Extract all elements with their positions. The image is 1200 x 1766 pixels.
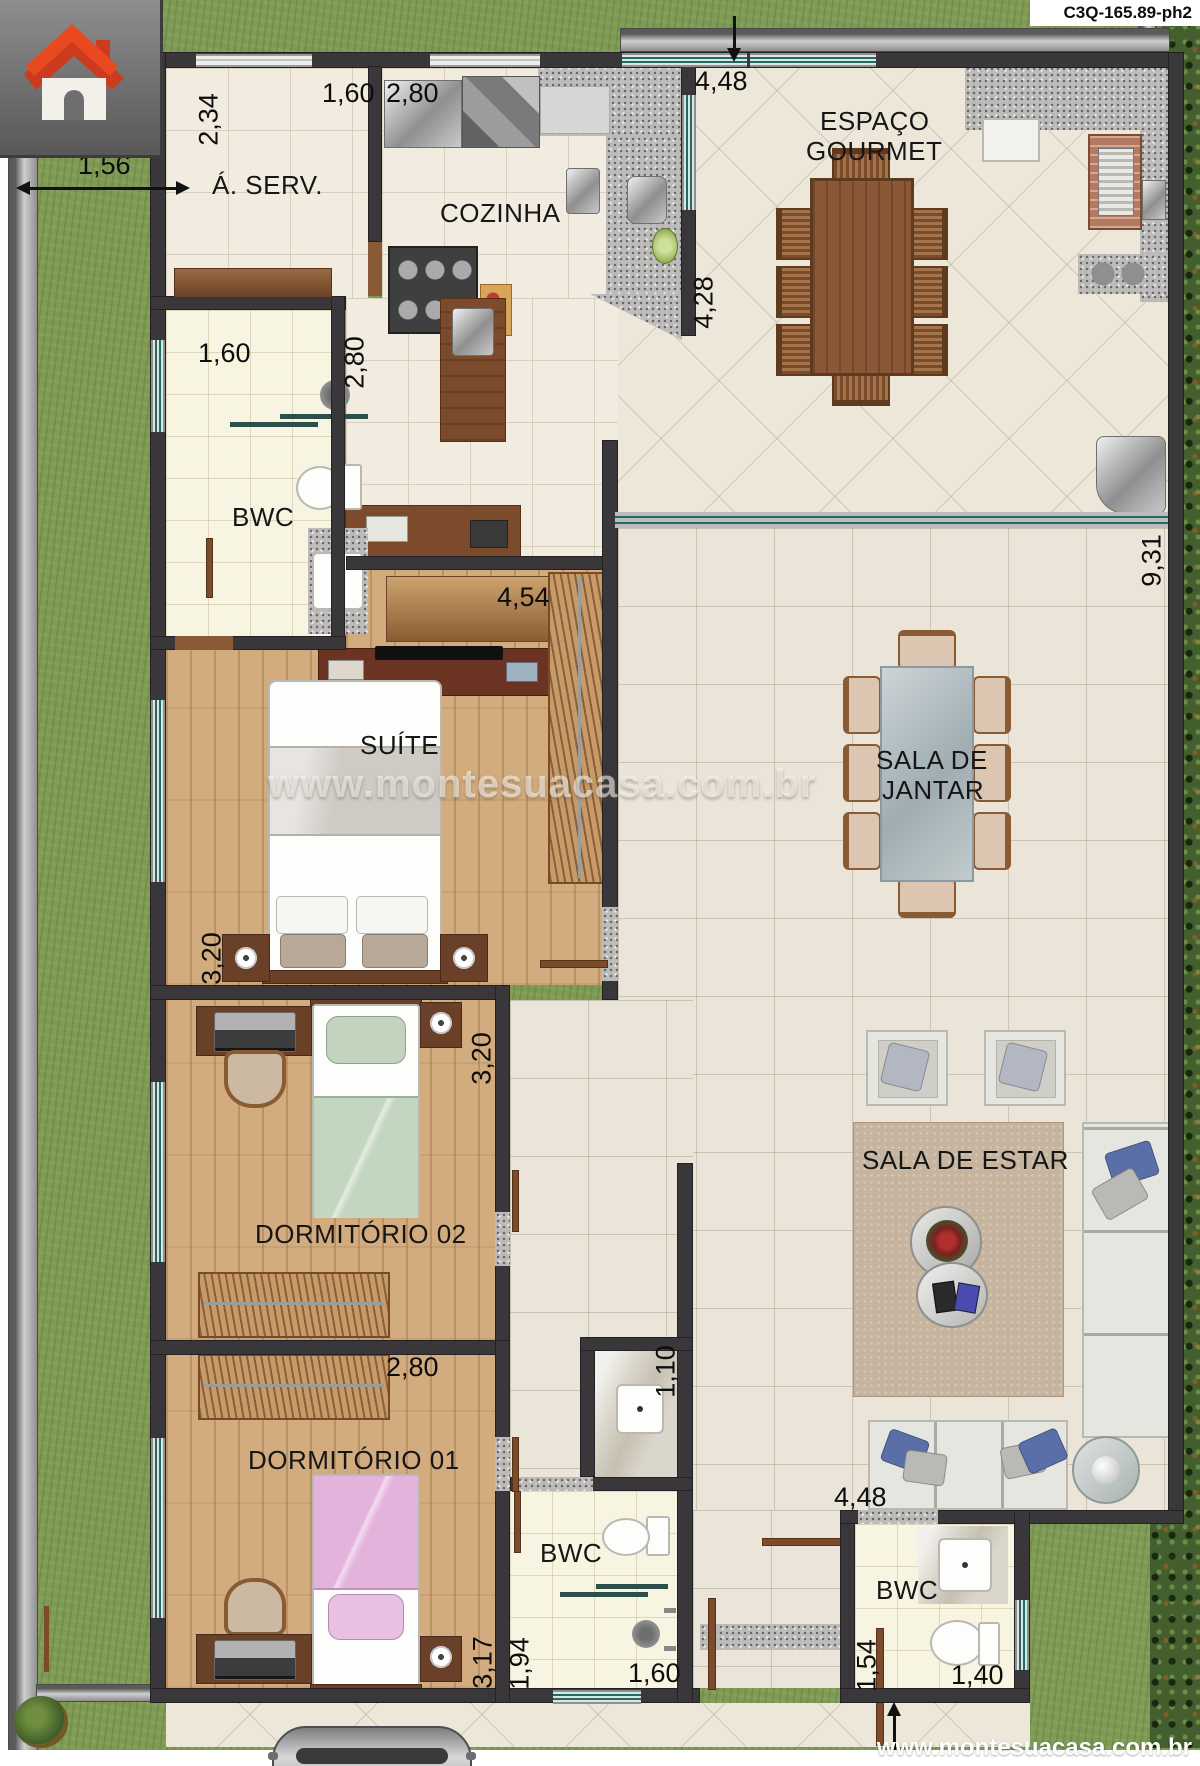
suite-pillow-4 (362, 934, 428, 968)
aserv-threshold (174, 268, 332, 298)
gourmet-chair-right-1 (912, 208, 948, 260)
label-gourmet-1: ESPAÇO (820, 106, 929, 137)
shrub-bottom-left (14, 1696, 68, 1748)
dish-bowl (652, 228, 678, 264)
window-dorm02 (151, 1082, 165, 1262)
boundary-wall-left (8, 155, 38, 1766)
wall-corredor-right (677, 1163, 693, 1703)
label-bwc-interno: BWC (540, 1538, 602, 1569)
door-dorm02 (512, 1170, 519, 1232)
wall-suite-top (346, 556, 618, 570)
island-sink (452, 308, 494, 356)
kitchen-counter-light (540, 86, 610, 134)
jantar-chair-left-1 (843, 676, 881, 734)
suite-tv (375, 646, 503, 660)
label-jantar-1: SALA DE (876, 745, 988, 776)
label-bwc-externo: BWC (876, 1575, 938, 1606)
suite-photo-frame-2 (506, 662, 538, 682)
dim-bwc-externo-depth: 1,54 (852, 1636, 883, 1696)
dim-dorm01-depth: 3,17 (468, 1633, 499, 1693)
arrow-recuo-line (24, 187, 182, 190)
bwc-social-door (206, 538, 213, 598)
dim-suite-width: 4,54 (497, 582, 550, 613)
label-dorm01: DORMITÓRIO 01 (248, 1445, 460, 1476)
suite-nightstand-cd-left (233, 945, 259, 971)
dorm01-chair (224, 1578, 286, 1636)
window-suite (151, 700, 165, 882)
wall-right (1168, 52, 1184, 1524)
wall-nicho-left (580, 1337, 595, 1477)
gourmet-sala-slider (615, 512, 1168, 528)
plan-code: C3Q-165.89-ph2 (1020, 3, 1192, 23)
website-footer: www.montesuacasa.com.br (860, 1734, 1192, 1762)
door-sill-dorm02 (495, 1212, 510, 1266)
jantar-chair-left-3 (843, 812, 881, 870)
arrow-recuo-head-left (16, 181, 30, 195)
dorm01-laptop (214, 1640, 296, 1680)
suite-pillow-1 (276, 896, 348, 934)
g​ourmet-chair-right-2 (912, 266, 948, 318)
kitchen-fridge-small (627, 176, 667, 224)
bwc-interno-towel-bar-1 (560, 1592, 648, 1597)
dorm01-blanket (314, 1476, 418, 1590)
dorm02-wardrobe (198, 1272, 390, 1338)
entry-path (700, 1624, 840, 1650)
window-aserv-top (196, 54, 312, 67)
nicho-sink-drain (637, 1406, 643, 1412)
arrow-recuo-head-right (176, 181, 190, 195)
label-suite: SUÍTE (360, 730, 439, 761)
bwc-interno-shower-handle-1 (664, 1608, 676, 1613)
gourmet-table (810, 178, 914, 376)
gourmet-chair-left-1 (776, 208, 812, 260)
barbecue-grate (1098, 148, 1134, 216)
arrow-gourmet-head (727, 48, 741, 62)
dim-suite-depth: 3,20 (197, 929, 228, 989)
flower-bouquet (926, 1220, 968, 1262)
dim-dorm01-width: 2,80 (386, 1352, 439, 1383)
dorm01-wardrobe (198, 1354, 390, 1420)
gourmet-chair-left-2 (776, 266, 812, 318)
window-cozinha-top (430, 54, 540, 67)
dim-estar-width: 4,48 (834, 1482, 887, 1513)
dorm01-nightstand-cd (428, 1644, 454, 1670)
sideboard-tray (366, 516, 408, 542)
bwc-externo-door (762, 1538, 852, 1546)
watermark-text: www.montesuacasa.com.br (268, 762, 816, 807)
window-bwc-externo (1015, 1600, 1029, 1670)
bwc-interno-toilet-bowl (602, 1518, 650, 1556)
suite-photo-frame-1 (328, 660, 364, 680)
wall-aserv-bottom (150, 296, 346, 310)
dim-aserv-width: 1,60 (322, 78, 375, 109)
suite-wardrobe-rail (578, 578, 581, 878)
kitchen-sink (566, 168, 600, 214)
window-bwc-social (151, 340, 165, 432)
suite-headboard (262, 970, 448, 984)
door-sill-aserv (368, 242, 382, 296)
label-estar: SALA DE ESTAR (862, 1145, 1069, 1176)
dim-bwc-interno-width: 1,60 (628, 1658, 681, 1689)
dorm02-nightstand-cd (428, 1010, 454, 1036)
car (268, 1722, 476, 1766)
site-logo-house-icon (14, 16, 134, 126)
window-bwc-interno (553, 1690, 641, 1704)
side-table-lamp (1092, 1456, 1120, 1484)
dim-gourmet-width: 4,48 (695, 66, 748, 97)
dim-bwc-externo-width: 1,40 (951, 1660, 1004, 1691)
door-sill-bwc-social (175, 636, 233, 650)
floor-plan: Á. SERV. COZINHA ESPAÇO GOURMET BWC SUÍT… (0, 0, 1200, 1766)
car-mirror-left (268, 1752, 278, 1760)
garden-gate-post (44, 1606, 49, 1672)
arrow-gourmet-line (733, 16, 736, 50)
dim-profundidade: 9,31 (1137, 531, 1168, 591)
dim-aserv-depth: 2,34 (194, 90, 225, 150)
label-area-servico: Á. SERV. (212, 170, 323, 201)
dim-dorm02-depth: 3,20 (467, 1029, 498, 1089)
dim-gourmet-depth: 4,28 (689, 273, 720, 333)
label-gourmet-2: GOURMET (806, 136, 942, 167)
towel-bar-1 (230, 422, 318, 427)
car-mirror-right (466, 1752, 476, 1760)
page-edge-left (0, 0, 8, 1766)
door-sill-bwc-interno (517, 1477, 593, 1491)
door-sill-dorm01 (495, 1437, 510, 1491)
dorm02-wardrobe-rail (204, 1302, 384, 1305)
jantar-chair-right-1 (973, 676, 1011, 734)
bwc-interno-shower-head (632, 1620, 660, 1648)
window-dorm01 (151, 1438, 165, 1618)
wall-dorm-divider (150, 1340, 510, 1355)
sofa-bottom-pillow-gray-left (902, 1449, 948, 1487)
gourmet-appliance (1142, 180, 1166, 220)
gourmet-sink-bowls (1088, 260, 1148, 288)
label-dorm02: DORMITÓRIO 02 (255, 1219, 467, 1250)
dorm01-wardrobe-rail (204, 1384, 384, 1387)
dim-cozinha-width: 2,80 (386, 78, 439, 109)
window-kitchen-pass (682, 95, 696, 210)
door-dorm01 (512, 1437, 519, 1492)
suite-nightstand-cd-right (451, 945, 477, 971)
dorm02-blanket (314, 1096, 418, 1218)
jantar-chair-head-bottom (898, 878, 956, 918)
label-bwc-social: BWC (232, 502, 294, 533)
jantar-chair-right-3 (973, 812, 1011, 870)
site-logo (0, 0, 163, 158)
dorm02-chair (224, 1050, 286, 1108)
kitchen-corner-sink (462, 76, 540, 148)
dim-bwc-social-depth: 2,80 (340, 333, 371, 393)
dim-bwc-interno-depth: 1,94 (505, 1634, 536, 1694)
gourmet-chair-left-3 (776, 324, 812, 376)
jantar-chair-head-top (898, 630, 956, 670)
label-jantar-2: JANTAR (882, 775, 984, 806)
dorm02-laptop (214, 1012, 296, 1052)
suite-pillow-2 (356, 896, 428, 934)
gourmet-chair-right-3 (912, 324, 948, 376)
bwc-interno-towel-bar-2 (596, 1584, 668, 1589)
label-cozinha: COZINHA (440, 198, 561, 229)
towel-bar-2 (280, 414, 368, 419)
dorm01-pillow (328, 1594, 404, 1640)
bwc-interno-shower-handle-2 (664, 1646, 676, 1651)
door-suite (540, 960, 608, 968)
sideboard-box (470, 520, 508, 548)
dim-nicho: 1,10 (651, 1342, 682, 1402)
arrow-entry-head (887, 1702, 901, 1716)
sidewalk-top (620, 28, 1170, 52)
entry-post-left (708, 1598, 716, 1690)
car-windshield (296, 1748, 448, 1764)
door-bwc-interno (514, 1491, 521, 1553)
bwc-externo-sink-drain (962, 1562, 968, 1568)
gourmet-fridge (1096, 436, 1166, 514)
gourmet-window-unit (982, 118, 1040, 162)
door-sill-suite (602, 907, 618, 981)
sliding-door-gourmet-top-2 (750, 53, 876, 67)
dorm02-pillow (326, 1016, 406, 1064)
dim-bwc-social-width: 1,60 (198, 338, 251, 369)
suite-pillow-3 (280, 934, 346, 968)
